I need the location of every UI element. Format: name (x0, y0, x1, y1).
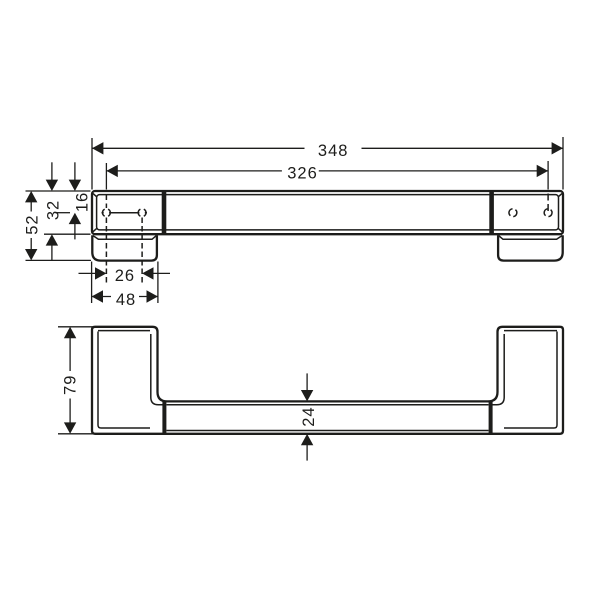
svg-text:24: 24 (300, 406, 318, 426)
svg-text:26: 26 (115, 267, 135, 285)
svg-text:348: 348 (318, 142, 349, 160)
svg-text:52: 52 (24, 214, 42, 234)
svg-text:79: 79 (62, 375, 80, 395)
svg-text:48: 48 (116, 291, 136, 309)
svg-text:32: 32 (44, 200, 62, 220)
svg-text:16: 16 (73, 192, 91, 212)
svg-text:326: 326 (287, 164, 318, 182)
